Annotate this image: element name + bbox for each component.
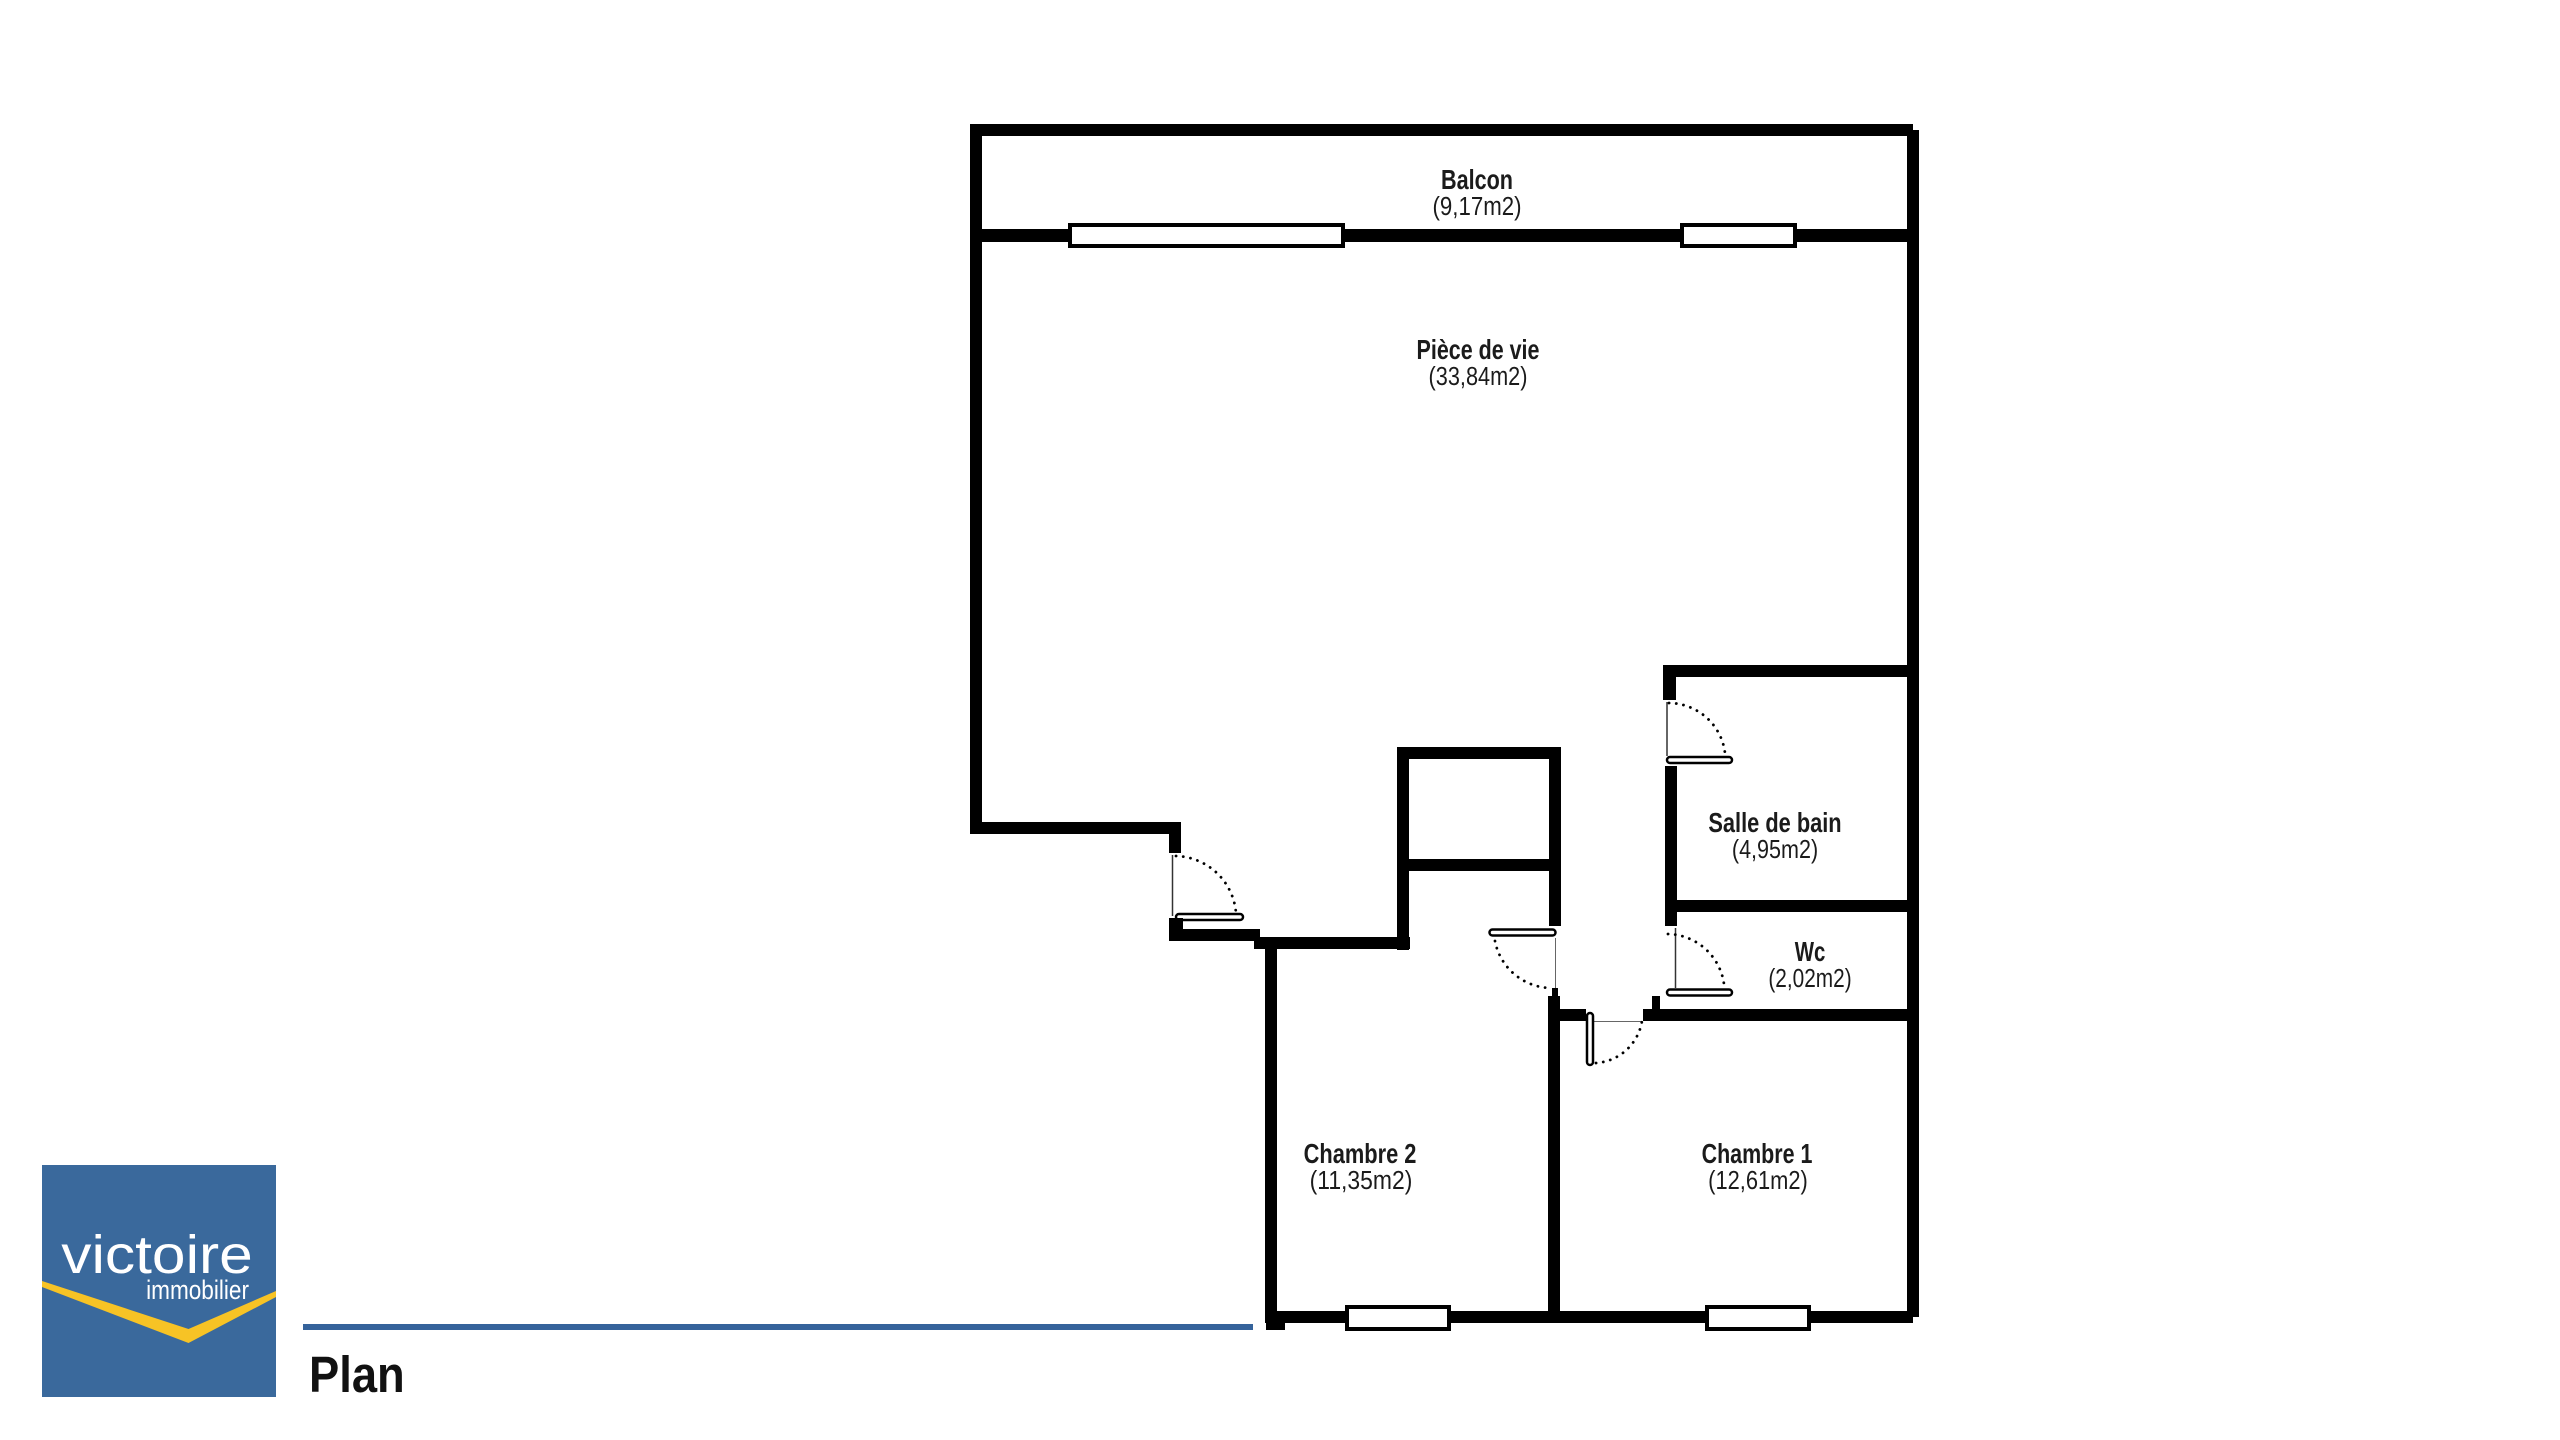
svg-text:(12,61m2): (12,61m2) <box>1708 1166 1808 1195</box>
svg-text:Pièce de vie: Pièce de vie <box>1417 334 1540 365</box>
svg-text:immobilier: immobilier <box>146 1275 249 1305</box>
svg-text:(9,17m2): (9,17m2) <box>1432 192 1521 221</box>
svg-text:(2,02m2): (2,02m2) <box>1768 964 1851 993</box>
svg-text:Balcon: Balcon <box>1441 164 1513 195</box>
svg-text:Plan: Plan <box>309 1347 405 1404</box>
svg-text:Salle de bain: Salle de bain <box>1708 807 1841 838</box>
svg-text:(4,95m2): (4,95m2) <box>1732 835 1818 864</box>
svg-text:(33,84m2): (33,84m2) <box>1429 362 1528 391</box>
svg-text:(11,35m2): (11,35m2) <box>1310 1167 1413 1196</box>
svg-text:Chambre 2: Chambre 2 <box>1304 1138 1417 1169</box>
svg-text:Chambre 1: Chambre 1 <box>1702 1138 1813 1169</box>
